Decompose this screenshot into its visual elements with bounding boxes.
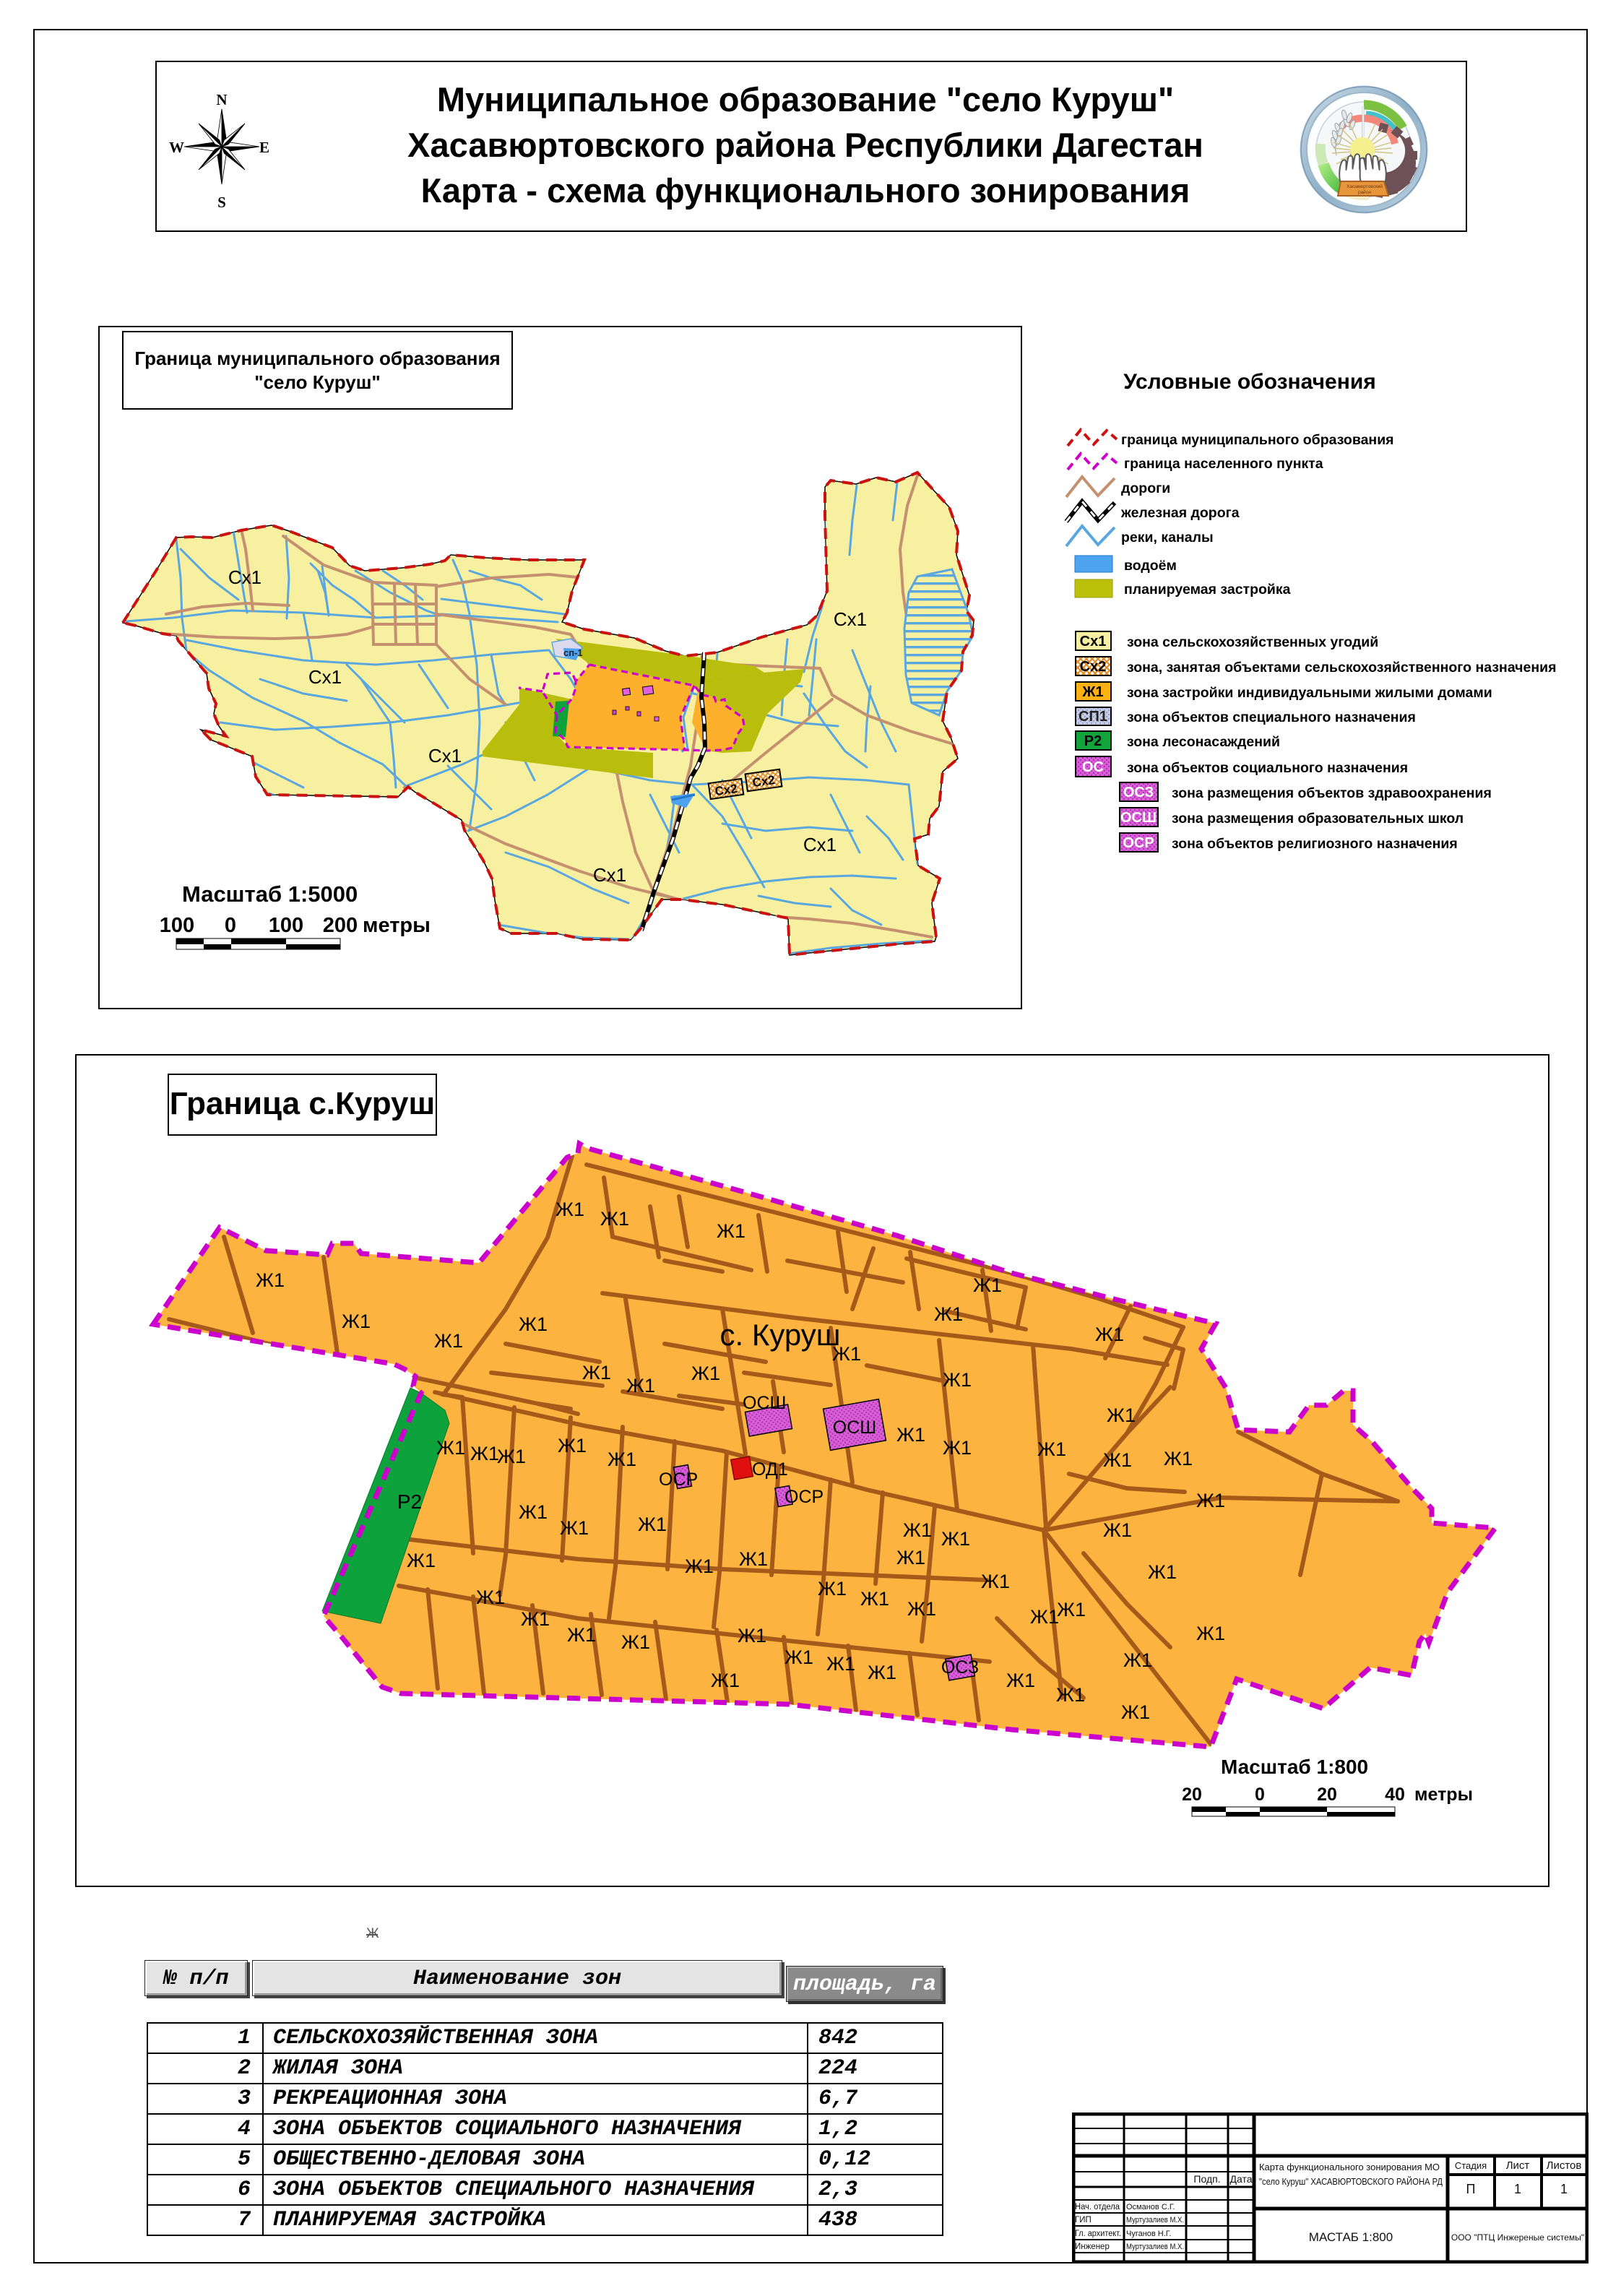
svg-text:40: 40 <box>1385 1784 1405 1805</box>
svg-text:Сх1: Сх1 <box>803 834 837 855</box>
svg-text:Ж1: Ж1 <box>1148 1561 1177 1583</box>
svg-text:Карта функционального зонирова: Карта функционального зонирования МО <box>1259 2162 1440 2172</box>
svg-text:ОСЗ: ОСЗ <box>941 1657 979 1678</box>
svg-text:Дата: Дата <box>1229 2173 1252 2185</box>
svg-text:Ж1: Ж1 <box>1196 1623 1225 1644</box>
svg-text:20: 20 <box>1317 1784 1337 1805</box>
svg-text:Ж1: Ж1 <box>1164 1448 1193 1469</box>
svg-text:зона объектов социального назн: зона объектов социального назначения <box>1127 760 1408 776</box>
svg-text:Ж1: Ж1 <box>784 1647 813 1668</box>
svg-text:Листов: Листов <box>1547 2159 1582 2172</box>
svg-text:Ж1: Ж1 <box>476 1587 505 1608</box>
svg-text:S: S <box>217 194 226 211</box>
svg-text:Нач. отдела: Нач. отдела <box>1075 2203 1120 2211</box>
svg-text:Ж1: Ж1 <box>691 1363 720 1384</box>
svg-text:Ж1: Ж1 <box>1081 684 1103 700</box>
svg-text:N: N <box>216 91 227 108</box>
svg-text:Ж1: Ж1 <box>903 1519 932 1541</box>
svg-text:Ж1: Ж1 <box>739 1548 768 1570</box>
svg-text:Ж1: Ж1 <box>1103 1519 1132 1541</box>
svg-text:Лист: Лист <box>1506 2159 1530 2172</box>
svg-text:Ж1: Ж1 <box>521 1608 550 1630</box>
svg-text:Сх1: Сх1 <box>593 864 626 886</box>
svg-text:Ж1: Ж1 <box>832 1343 861 1365</box>
svg-text:ОСШ: ОСШ <box>833 1417 876 1438</box>
svg-text:ОС: ОС <box>1082 759 1104 775</box>
svg-text:Ж1: Ж1 <box>556 1199 584 1220</box>
svg-text:зона размещения образовательны: зона размещения образовательных школ <box>1172 811 1464 827</box>
svg-text:1: 1 <box>1560 2182 1568 2196</box>
svg-text:Ж1: Ж1 <box>868 1662 896 1683</box>
svg-text:Ж1: Ж1 <box>342 1311 371 1332</box>
svg-text:Ж1: Ж1 <box>470 1443 499 1464</box>
svg-text:зона размещения объектов здрав: зона размещения объектов здравоохранения <box>1172 785 1492 801</box>
svg-text:планируемая застройка: планируемая застройка <box>1124 582 1291 597</box>
svg-text:ОСР: ОСР <box>1123 835 1154 851</box>
svg-text:0: 0 <box>225 914 236 937</box>
svg-text:Ж1: Ж1 <box>943 1437 972 1459</box>
svg-text:Ж1: Ж1 <box>826 1653 855 1675</box>
svg-text:Ж1: Ж1 <box>519 1501 548 1523</box>
svg-text:ОСЗ: ОСЗ <box>1123 785 1154 800</box>
svg-text:Ж1: Ж1 <box>519 1313 548 1335</box>
svg-text:Ж1: Ж1 <box>818 1578 847 1600</box>
svg-text:Ж1: Ж1 <box>981 1571 1010 1592</box>
svg-text:Р2: Р2 <box>397 1490 422 1513</box>
svg-text:Ж1: Ж1 <box>1057 1599 1086 1620</box>
svg-text:железная дорога: железная дорога <box>1120 505 1240 521</box>
svg-text:граница населенного пункта: граница населенного пункта <box>1124 456 1323 472</box>
svg-text:Сх1: Сх1 <box>428 745 462 767</box>
svg-text:метры: метры <box>363 914 431 937</box>
svg-text:E: E <box>259 139 269 156</box>
svg-text:Сх1: Сх1 <box>228 566 261 588</box>
svg-text:водоём: водоём <box>1124 558 1177 574</box>
svg-text:Хасавюртовский: Хасавюртовский <box>1346 184 1383 189</box>
svg-text:с. Куруш: с. Куруш <box>720 1318 841 1352</box>
svg-text:Стадия: Стадия <box>1455 2160 1487 2171</box>
svg-text:ГИП: ГИП <box>1075 2216 1092 2224</box>
svg-text:Ж1: Ж1 <box>436 1437 465 1459</box>
svg-text:1: 1 <box>1514 2182 1521 2196</box>
svg-text:"село Куруш" ХАСАВЮРТОВСКОГО Р: "село Куруш" ХАСАВЮРТОВСКОГО РАЙОНА РД <box>1259 2176 1443 2187</box>
svg-text:Ж1: Ж1 <box>1121 1701 1150 1723</box>
svg-text:Ж1: Ж1 <box>567 1624 596 1646</box>
svg-text:Сх1: Сх1 <box>308 666 342 688</box>
svg-text:Ж1: Ж1 <box>860 1588 889 1610</box>
svg-text:Ж1: Ж1 <box>896 1547 925 1568</box>
svg-text:Ж1: Ж1 <box>608 1449 636 1470</box>
svg-text:Ж1: Ж1 <box>1123 1649 1152 1671</box>
svg-text:200: 200 <box>323 914 358 937</box>
svg-text:Османов С.Г.: Османов С.Г. <box>1126 2203 1175 2211</box>
svg-text:Ж1: Ж1 <box>941 1528 970 1550</box>
svg-text:МАСТАБ 1:800: МАСТАБ 1:800 <box>1309 2230 1393 2244</box>
svg-text:район: район <box>1358 189 1371 195</box>
svg-text:Ж1: Ж1 <box>407 1550 436 1571</box>
svg-text:ОСР: ОСР <box>784 1487 824 1507</box>
svg-text:ООО "ПТЦ Инжереные системы": ООО "ПТЦ Инжереные системы" <box>1451 2232 1584 2243</box>
svg-text:зона лесонасаждений: зона лесонасаждений <box>1127 734 1280 750</box>
svg-text:зона объектов специального наз: зона объектов специального назначения <box>1127 709 1416 725</box>
svg-text:зона, занятая объектами сельск: зона, занятая объектами сельскохозяйстве… <box>1127 660 1557 676</box>
svg-text:0: 0 <box>1255 1784 1265 1805</box>
svg-text:Ж1: Ж1 <box>638 1514 667 1535</box>
svg-text:Ж1: Ж1 <box>973 1274 1002 1296</box>
svg-text:Сх1: Сх1 <box>1080 634 1107 649</box>
svg-text:зона объектов религиозного наз: зона объектов религиозного назначения <box>1172 836 1458 852</box>
svg-text:Муртузалиев М.Х.: Муртузалиев М.Х. <box>1126 2243 1184 2251</box>
svg-text:Ж1: Ж1 <box>1056 1684 1085 1706</box>
svg-text:Р2: Р2 <box>1084 733 1102 749</box>
svg-text:Ж1: Ж1 <box>1196 1490 1225 1511</box>
svg-text:Ж1: Ж1 <box>1095 1324 1124 1345</box>
svg-text:Ж1: Ж1 <box>560 1517 589 1539</box>
svg-text:100: 100 <box>269 914 303 937</box>
svg-text:Ж1: Ж1 <box>685 1555 714 1577</box>
svg-text:ОД1: ОД1 <box>752 1459 788 1480</box>
svg-text:Ж1: Ж1 <box>1006 1670 1035 1691</box>
svg-text:ОСШ: ОСШ <box>743 1393 786 1413</box>
svg-text:Ж1: Ж1 <box>738 1625 766 1647</box>
svg-text:П: П <box>1466 2182 1476 2196</box>
svg-text:Ж1: Ж1 <box>896 1424 925 1446</box>
svg-text:Сх1: Сх1 <box>834 608 867 630</box>
svg-text:Ж1: Ж1 <box>711 1670 740 1691</box>
svg-text:ОСР: ОСР <box>659 1469 698 1490</box>
svg-text:100: 100 <box>160 914 194 937</box>
svg-text:Ж1: Ж1 <box>934 1303 963 1325</box>
svg-text:Муртузалиев М.Х.: Муртузалиев М.Х. <box>1126 2216 1184 2224</box>
svg-text:W: W <box>169 139 184 156</box>
svg-text:Ж1: Ж1 <box>434 1330 463 1352</box>
svg-text:Ж1: Ж1 <box>256 1269 285 1291</box>
svg-text:Ж1: Ж1 <box>626 1375 655 1397</box>
svg-text:Ж1: Ж1 <box>717 1220 745 1242</box>
svg-text:зона застройки индивидуальными: зона застройки индивидуальными жилыми до… <box>1127 685 1492 701</box>
svg-text:Чуганов Н.Г.: Чуганов Н.Г. <box>1126 2230 1171 2238</box>
svg-text:Сх2: Сх2 <box>1080 659 1107 675</box>
svg-text:Ж1: Ж1 <box>907 1598 936 1620</box>
svg-text:Ж1: Ж1 <box>582 1362 611 1384</box>
svg-text:Ж1: Ж1 <box>1030 1606 1059 1628</box>
svg-text:20: 20 <box>1182 1784 1202 1805</box>
svg-text:Ж1: Ж1 <box>1103 1449 1132 1471</box>
svg-text:зона сельскохозяйственных угод: зона сельскохозяйственных угодий <box>1127 634 1378 650</box>
svg-text:метры: метры <box>1414 1784 1473 1805</box>
svg-text:Ж1: Ж1 <box>600 1208 629 1230</box>
svg-text:Подп.: Подп. <box>1193 2173 1220 2185</box>
svg-text:Ж1: Ж1 <box>558 1435 587 1456</box>
svg-text:Ж1: Ж1 <box>1037 1438 1066 1460</box>
svg-text:Ж1: Ж1 <box>497 1446 526 1467</box>
svg-text:реки, каналы: реки, каналы <box>1121 530 1214 545</box>
svg-text:Ж1: Ж1 <box>1107 1404 1136 1426</box>
svg-text:дороги: дороги <box>1121 480 1170 496</box>
svg-text:ОСШ: ОСШ <box>1120 810 1157 826</box>
svg-text:сп-1: сп-1 <box>563 647 583 658</box>
svg-text:Инженер: Инженер <box>1075 2243 1110 2251</box>
svg-text:Гл. архитект.: Гл. архитект. <box>1075 2230 1121 2238</box>
svg-text:Ж1: Ж1 <box>621 1631 650 1653</box>
svg-text:СП1: СП1 <box>1078 709 1107 725</box>
svg-text:граница муниципального образов: граница муниципального образования <box>1121 432 1394 448</box>
svg-text:Ж1: Ж1 <box>943 1369 972 1391</box>
